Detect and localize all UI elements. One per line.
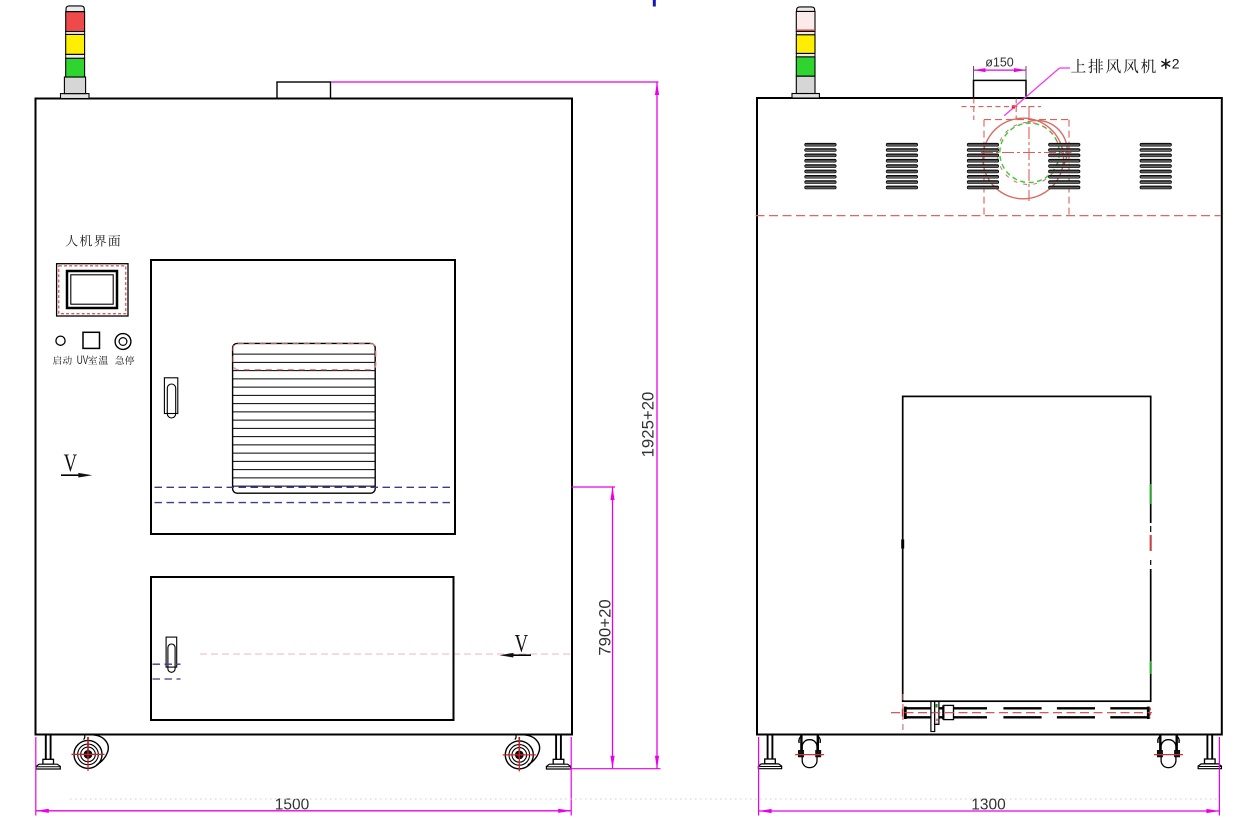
svg-text:790+20: 790+20 <box>596 599 615 655</box>
svg-text:1300: 1300 <box>971 797 1006 814</box>
svg-text:V: V <box>64 448 77 477</box>
svg-text:1925+20: 1925+20 <box>639 392 658 458</box>
svg-text:1500: 1500 <box>275 797 310 814</box>
svg-text:V: V <box>515 629 528 658</box>
svg-text:ø150: ø150 <box>985 55 1014 69</box>
svg-text:2: 2 <box>1172 56 1180 72</box>
svg-text:UV: UV <box>77 355 89 368</box>
